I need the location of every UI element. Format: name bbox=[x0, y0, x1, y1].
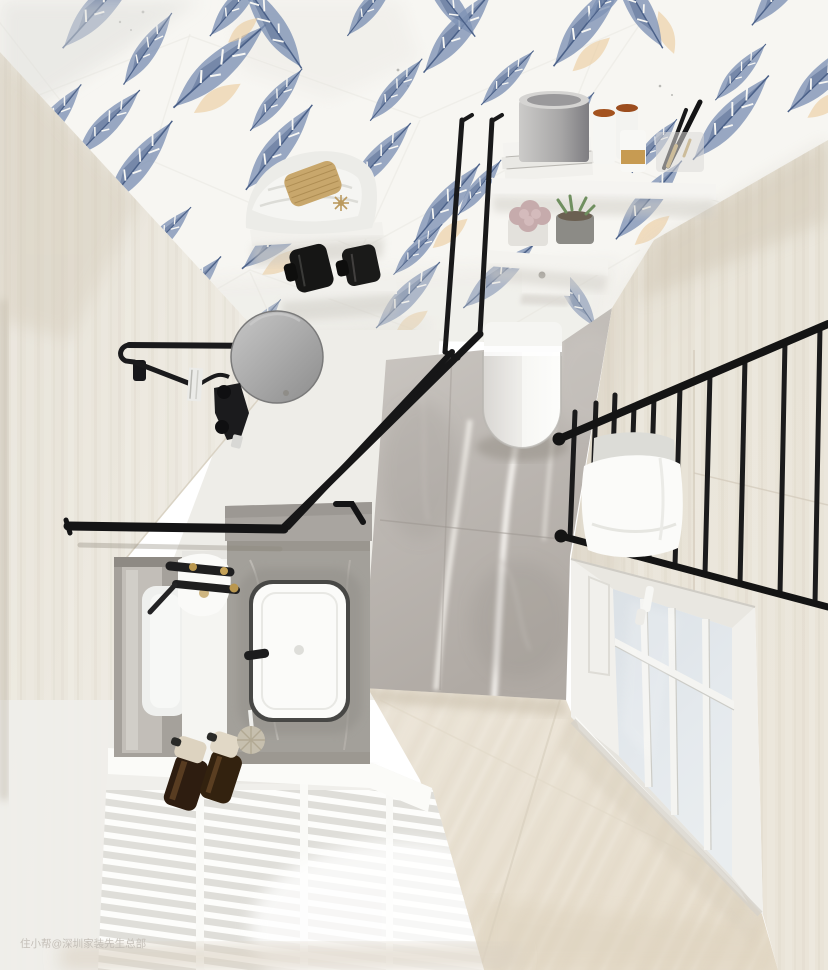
svg-text:住小帮@深圳家装先生总部: 住小帮@深圳家装先生总部 bbox=[20, 937, 146, 950]
